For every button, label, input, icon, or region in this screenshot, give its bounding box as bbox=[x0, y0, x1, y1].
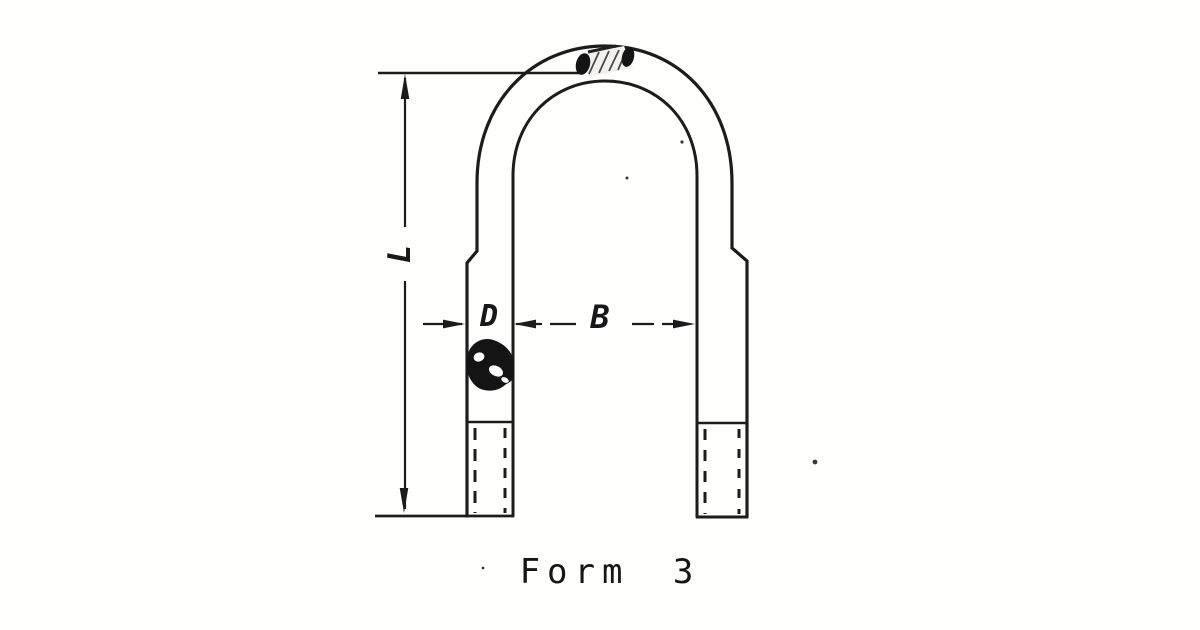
width-label: B bbox=[580, 301, 620, 333]
figure-caption: Form 3 bbox=[470, 552, 750, 592]
ink-blot bbox=[467, 339, 514, 391]
arrowhead-down-icon bbox=[400, 488, 409, 513]
arrowhead-left-icon bbox=[514, 320, 536, 329]
hatch-patch bbox=[574, 46, 637, 77]
arrowhead-right-icon bbox=[673, 320, 695, 329]
scan-speckles bbox=[482, 140, 818, 569]
u-bolt-outline bbox=[467, 46, 747, 517]
length-dimension bbox=[375, 73, 583, 516]
arrowhead-right-icon bbox=[443, 320, 465, 329]
diameter-label: D bbox=[471, 302, 507, 332]
length-label: L bbox=[385, 231, 417, 277]
thread-lines bbox=[466, 422, 747, 517]
scanned-technical-drawing: L D B Form 3 bbox=[0, 0, 1200, 630]
diameter-dimension bbox=[423, 320, 465, 329]
arrowhead-up-icon bbox=[401, 74, 410, 99]
